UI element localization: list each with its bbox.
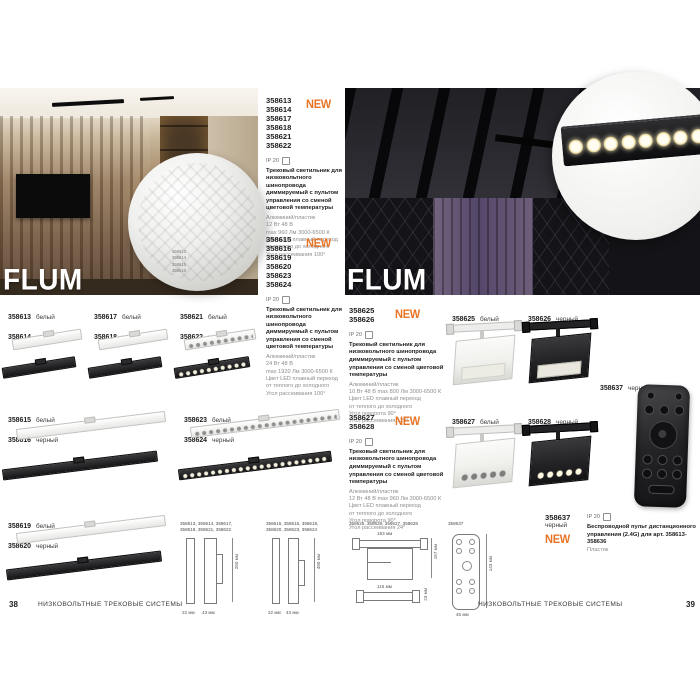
product-image-358617-358618 (88, 326, 172, 396)
track-light-black-spots (174, 356, 251, 379)
dimension-line (431, 538, 432, 578)
dimension-width2: 43 мм (286, 610, 299, 615)
product-image-358626 (522, 316, 600, 398)
dimension-height-right: 157 мм (433, 544, 438, 559)
spec-power: 24 Вт 48 В (266, 361, 346, 368)
footer-section-title-left: НИЗКОВОЛЬТНЫЕ ТРЕКОВЫЕ СИСТЕМЫ (38, 601, 182, 608)
track-light-black-spots (178, 451, 332, 481)
led-lens (690, 128, 700, 144)
product-image-358619-358620 (2, 514, 172, 600)
ceiling (0, 88, 258, 118)
footer-section-title-right: НИЗКОВОЛЬТНЫЕ ТРЕКОВЫЕ СИСТЕМЫ (478, 601, 622, 608)
end-cap-drawing (352, 538, 360, 550)
texture-zoom-inset: 358613 358614 358615 358616 (128, 153, 266, 291)
spec-led-color: Цвет LED плавный переход (349, 396, 447, 403)
ip-rating-row: IP 20 (349, 438, 447, 446)
track-light-white (16, 411, 166, 440)
product-description: Трековый светильник для низковольтного ш… (266, 307, 346, 352)
ip-rating: IP 20 (587, 514, 600, 520)
product-description: Трековый светильник для низковольтного ш… (349, 449, 447, 487)
spec-led-color: Цвет LED плавный переход (349, 503, 447, 510)
spec-led-color: Цвет LED плавный переход (266, 376, 346, 383)
page-number-left: 38 (9, 600, 18, 609)
ip-rating: IP 20 (349, 439, 362, 445)
protection-class-icon (282, 157, 290, 165)
track-light-white-spots (190, 409, 340, 438)
end-cap-drawing (412, 590, 420, 603)
spec-beam-angle: Угол рассеивания 100° (266, 391, 346, 398)
spec-material: Алюминий/пластик (266, 354, 346, 361)
purple-curtain (433, 198, 533, 295)
dimension-group-fold: 358625, 358626, 358627, 358628 183 мм 15… (349, 521, 454, 616)
product-image-358623-358624 (178, 408, 344, 500)
product-image-358628 (522, 419, 600, 501)
ip-rating-row: IP 20 (587, 513, 699, 521)
dimension-height: 250 мм (234, 554, 239, 569)
mount-bracket-drawing (298, 560, 305, 586)
inset-code: 358616 (172, 268, 186, 274)
article-code: 358637 (545, 513, 585, 522)
spec-led-color2: от теплого до холодного (349, 511, 447, 518)
led-lens (603, 135, 619, 151)
spec-block-358627: NEW 358627 358628 IP 20 Трековый светиль… (349, 414, 447, 533)
dimension-group-short: 358613, 358614, 358617, 358618, 358621, … (180, 521, 260, 608)
led-lens (673, 129, 689, 145)
track-light-white (16, 515, 166, 544)
protection-class-icon (365, 331, 373, 339)
track-light-white (98, 329, 169, 351)
new-badge: NEW (545, 532, 582, 546)
fold-body-drawing (367, 548, 413, 580)
spec-material: Пластик (587, 547, 699, 554)
dimension-codes: 358637 (448, 521, 508, 527)
dimension-line (314, 538, 315, 602)
product-code: 358621 (180, 314, 203, 321)
new-badge: NEW (306, 236, 331, 250)
remote-dpad (649, 421, 678, 450)
spec-led-color2: от теплого до холодного (349, 404, 447, 411)
spec-led-color2: от теплого до холодного (266, 383, 346, 390)
spec-lumen: max 1920 Лм 3000-6500 К (266, 369, 346, 376)
product-color: белый (122, 314, 141, 321)
page-number-right: 39 (686, 600, 695, 609)
led-lens (568, 138, 584, 154)
dimension-codes: 358625, 358626, 358627, 358628 (349, 521, 454, 527)
product-image-358625 (446, 318, 524, 400)
tv-screen (16, 174, 90, 218)
dimension-width1: 22 мм (182, 610, 195, 615)
track-light-white-spots (184, 328, 257, 350)
series-title-left: FLUM (3, 263, 83, 297)
product-image-358621-358622 (174, 326, 258, 396)
new-badge: NEW (395, 307, 420, 321)
led-lens (585, 137, 601, 153)
protection-class-icon (365, 438, 373, 446)
linear-spot-light-closeup (561, 114, 700, 167)
product-code: 358617 (94, 314, 117, 321)
product-code: 358613 (8, 314, 31, 321)
protection-class-icon (603, 513, 611, 521)
product-description: Трековый светильник для низковольтного ш… (266, 168, 346, 213)
dimension-line (486, 534, 487, 608)
new-badge: NEW (395, 414, 420, 428)
dimension-width-mid: 115 мм (377, 584, 392, 589)
dimension-codes: 358618, 358621, 358622 (180, 527, 260, 533)
track-light-black (88, 356, 163, 378)
end-cap-drawing (356, 590, 364, 603)
inset-code: 358615 (172, 262, 186, 268)
ip-rating-row: IP 20 (266, 296, 346, 304)
mount-bracket-drawing (216, 554, 223, 584)
inset-code: 358614 (172, 255, 186, 261)
track-light-white (12, 329, 83, 351)
product-color: черный (545, 522, 585, 529)
product-color: белый (208, 314, 227, 321)
profile-drawing-narrow (272, 538, 280, 604)
ip-rating: IP 20 (266, 297, 279, 303)
inset-code-list: 358613 358614 358615 358616 (172, 249, 186, 274)
product-image-358627 (446, 421, 524, 503)
product-image-358613-358614 (2, 326, 86, 396)
dimension-height-small: 23 мм (423, 588, 428, 601)
product-image-358615-358616 (2, 408, 172, 500)
remote-outline-drawing (452, 534, 480, 610)
dimension-line (232, 538, 233, 602)
spec-material: Алюминий/пластик (349, 382, 447, 389)
article-code: 358622 (266, 142, 346, 151)
led-lens (655, 131, 671, 147)
ip-rating: IP 20 (349, 332, 362, 338)
spec-block-358625: NEW 358625 358626 IP 20 Трековый светиль… (349, 307, 447, 426)
dimension-width: 45 мм (456, 612, 469, 617)
dimension-width-top: 183 мм (377, 531, 392, 536)
series-title-right: FLUM (347, 263, 427, 297)
dimension-width1: 22 мм (268, 610, 281, 615)
diamond-texture (138, 163, 256, 281)
profile-drawing-narrow (186, 538, 195, 604)
track-light-black (6, 551, 162, 581)
track-light-black (2, 356, 77, 378)
track-light-black (2, 451, 158, 481)
article-code: 358624 (266, 281, 346, 290)
fold-side-drawing (361, 592, 415, 601)
ip-rating-row: IP 20 (266, 157, 346, 165)
product-description: Беспроводной пульт дистанционного управл… (587, 524, 699, 547)
dimension-group-long: 358615, 358616, 358619, 358620, 358623, … (266, 521, 346, 608)
fold-track-drawing (357, 540, 423, 548)
dimension-height: 143 мм (488, 556, 493, 571)
ip-rating-row: IP 20 (349, 331, 447, 339)
led-lens (638, 132, 654, 148)
dimension-width2: 43 мм (202, 610, 215, 615)
new-badge: NEW (306, 97, 331, 111)
ip-rating: IP 20 (266, 158, 279, 164)
spec-block-358615: NEW 358615 358616 358619 358620 358623 3… (266, 236, 346, 398)
product-image-358637-remote (634, 384, 690, 508)
product-description: Трековый светильник для низковольтного ш… (349, 342, 447, 380)
spec-material: Алюминий/пластик (349, 489, 447, 496)
product-code: 358637 (600, 385, 623, 392)
end-cap-drawing (420, 538, 428, 550)
product-color: белый (36, 314, 55, 321)
dimension-codes: 358620, 358623, 358624 (266, 527, 346, 533)
led-lens (620, 134, 636, 150)
dimension-height: 490 мм (316, 554, 321, 569)
protection-class-icon (282, 296, 290, 304)
spec-material: Алюминий/пластик (266, 215, 346, 222)
spec-power: 12 Вт 48 В (266, 222, 346, 229)
